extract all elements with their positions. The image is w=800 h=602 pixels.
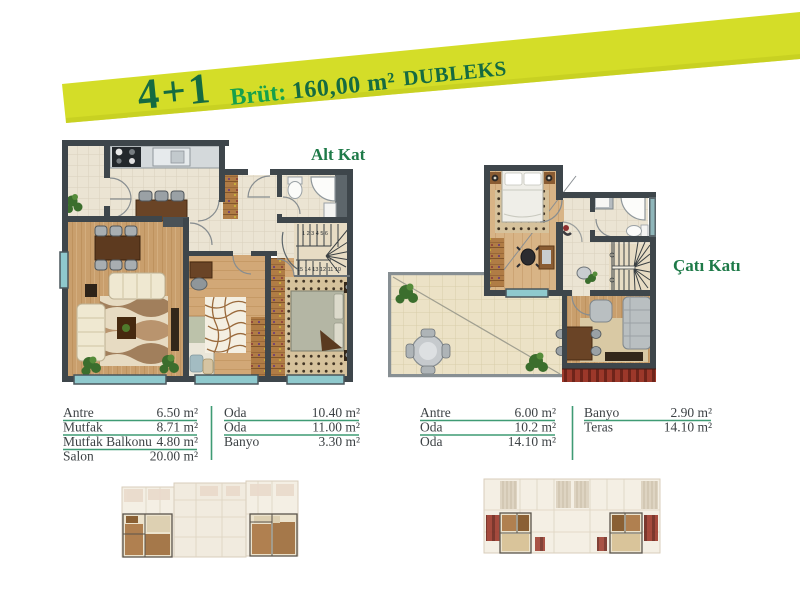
svg-text:6.50 m²: 6.50 m² [156,405,198,420]
svg-text:10.2 m²: 10.2 m² [514,420,556,435]
svg-text:Oda: Oda [420,420,443,435]
svg-text:8.71 m²: 8.71 m² [156,420,198,435]
svg-text:Antre: Antre [420,405,451,420]
svg-text:Alt Kat: Alt Kat [311,145,366,164]
svg-text:10.40 m²: 10.40 m² [312,405,360,420]
svg-text:1 2 3 4 5 6: 1 2 3 4 5 6 [302,231,328,237]
svg-text:Oda: Oda [224,405,247,420]
svg-text:6.00 m²: 6.00 m² [514,405,556,420]
svg-text:14.10 m²: 14.10 m² [664,420,712,435]
svg-text:Salon: Salon [63,449,94,464]
svg-text:20.00 m²: 20.00 m² [150,449,198,464]
svg-text:2.90 m²: 2.90 m² [670,405,712,420]
svg-text:15 14 13 12 11 10: 15 14 13 12 11 10 [297,267,341,273]
svg-text:Oda: Oda [224,420,247,435]
svg-text:Mutfak: Mutfak [63,420,103,435]
svg-text:Oda: Oda [420,434,443,449]
svg-text:Teras: Teras [584,420,613,435]
svg-text:Çatı Katı: Çatı Katı [673,256,741,275]
svg-text:Mutfak Balkonu: Mutfak Balkonu [63,434,152,449]
svg-text:Antre: Antre [63,405,94,420]
svg-text:Banyo: Banyo [584,405,619,420]
svg-text:Banyo: Banyo [224,434,259,449]
svg-text:4.80 m²: 4.80 m² [156,434,198,449]
svg-text:4+1: 4+1 [135,65,214,119]
svg-text:3.30 m²: 3.30 m² [318,434,360,449]
svg-text:14.10 m²: 14.10 m² [508,434,556,449]
svg-text:11.00 m²: 11.00 m² [312,420,360,435]
